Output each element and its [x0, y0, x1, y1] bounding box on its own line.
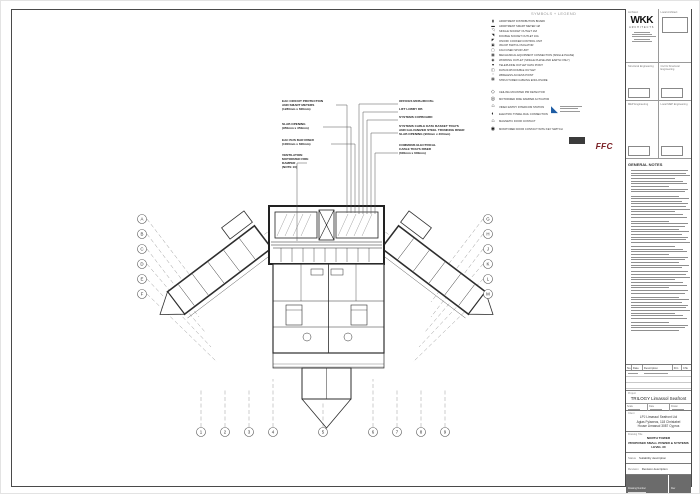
note-text-line — [631, 330, 679, 331]
note-text-line — [631, 271, 688, 272]
titleblock-cell: ArchitectWKKARCHITECTS — [626, 9, 659, 63]
legend-label: WORKING OUTLET (SINGLE PHASE AND EARTH O… — [499, 59, 570, 62]
drawing-number-cell: Drawing Number — [626, 475, 669, 494]
project-label: Project — [626, 391, 691, 395]
legend-label: SINGLE SOCKET OUTLET 16A — [499, 30, 537, 33]
note-text-line — [631, 297, 679, 298]
signature-box — [661, 146, 683, 156]
note-text-line — [631, 201, 682, 202]
grid-bubble-label: D — [140, 262, 143, 267]
signature-box — [661, 88, 683, 98]
project-meta-row: ScaleDateDrawn — [626, 403, 691, 411]
rev-col-header: Drn — [673, 365, 682, 370]
consultant-logo-2 — [569, 137, 585, 144]
legend-label: 45A DP SWITCH ISOLATOR — [499, 44, 534, 47]
callout: EAC CIRCUIT PROTECTIONAND SMART METERS(1… — [282, 100, 323, 112]
right-wing — [379, 211, 494, 318]
project-name: TRILOGY Limassol Seafront — [626, 396, 691, 401]
note-text-line — [631, 226, 685, 227]
rev-label: Rev — [671, 487, 675, 490]
note-text-line — [631, 214, 683, 215]
note-text-line — [631, 287, 669, 288]
signature-box — [628, 88, 650, 98]
legend-label: 16A FUSED SPUR UNIT — [499, 49, 529, 52]
client-lines: LPJ Limassol Seafront LtdAgias Fylaxeos,… — [626, 415, 691, 429]
legend-row: ◇CEILING MOUNTED PIR DETECTOR — [487, 89, 617, 96]
legend-symbol-icon: ◉ — [487, 59, 499, 63]
consultant-logo-1: ◣ — [551, 105, 582, 113]
note-text-line — [631, 327, 685, 328]
note-text-line — [631, 254, 669, 255]
grid-bubble-label: C — [140, 247, 143, 252]
note-text-line — [631, 277, 690, 278]
callouts-left: EAC CIRCUIT PROTECTIONAND SMART METERS(1… — [282, 100, 352, 170]
legend-title: SYMBOLS + LEGEND — [531, 11, 617, 16]
general-notes: GENERAL NOTES — [626, 159, 691, 365]
grid-bubble-label: K — [487, 262, 490, 267]
revision-table: No.DateDescriptionDrnChk — [626, 365, 691, 391]
general-notes-body — [628, 170, 689, 331]
note-text-line — [631, 234, 682, 235]
note-text-line — [631, 186, 669, 187]
note-text-line — [631, 249, 683, 250]
cell-label: Local MEP Engineering — [661, 103, 690, 106]
rev-col-header: Date — [632, 365, 643, 370]
callout-line: (1280mm x 600mm) — [282, 108, 323, 112]
callout: SYSTEMS CABLE DATA BASKET TRAYSAND GALVA… — [399, 125, 465, 137]
callout: VENTILATIONMOTORIZED FIREDAMPER(NOTE 10) — [282, 154, 308, 169]
grid-bubble-label: M — [486, 292, 490, 297]
callout-line: OFFICES MCBs/RCCBs — [399, 100, 434, 104]
note-text-line — [631, 242, 690, 243]
left-wing — [160, 211, 275, 318]
legend-label: MECHANICAL EQUIPMENT CONNECTION (SINGLE … — [499, 54, 574, 57]
blue-triangle-icon: ◣ — [551, 105, 558, 113]
titleblock: ArchitectWKKARCHITECTSLocal ArchitectStr… — [625, 9, 691, 487]
callout-line: LIFT LOBBY DB — [399, 108, 423, 112]
cell-label: Architect — [628, 11, 656, 14]
note-text-line — [631, 196, 679, 197]
general-notes-title: GENERAL NOTES — [628, 162, 689, 167]
status-row: Status Suitability description — [626, 453, 691, 464]
legend-symbol-icon: ◇ — [487, 90, 499, 95]
note-text-line — [631, 211, 675, 212]
note-text-line — [631, 231, 689, 232]
legend-label: APARTMENT DISTRIBUTION BOARD — [499, 20, 545, 23]
cell-label: Civil & Structural Engineering — [661, 65, 690, 71]
lower-stem — [302, 368, 351, 428]
note-text-line — [631, 239, 686, 240]
legend-symbol-icon: ▦ — [487, 54, 499, 58]
note-text-line — [631, 265, 689, 266]
grid-bubble-label: F — [141, 292, 144, 297]
note-text-line — [631, 170, 688, 171]
note-text-line — [631, 267, 682, 268]
titleblock-cell: Structural Engineering — [626, 63, 659, 101]
titleblock-cell: Local Architect — [659, 9, 692, 63]
titleblock-footer: Drawing Number Rev — [626, 475, 691, 494]
callout: EAC BUS BAR RISER(1000mm x 600mm) — [282, 139, 314, 147]
wkk-logo-subtext: ARCHITECTS — [628, 26, 656, 29]
note-text-line — [631, 282, 683, 283]
note-text-line — [631, 279, 675, 280]
core — [269, 206, 384, 264]
legend-label: WIRELESS ACCESS POINT — [499, 74, 534, 77]
note-text-line — [631, 223, 688, 224]
note-text-line — [631, 307, 686, 308]
rev-col-header: Chk — [682, 365, 691, 370]
note-text-line — [631, 322, 669, 323]
rev-col-header: Description — [643, 365, 673, 370]
callout: SYSTEMS CUPBOARD — [399, 116, 433, 120]
note-text-line — [631, 189, 688, 190]
callout: COMMONS ELECTRICALCABLE TRAYS RISER(600m… — [399, 144, 436, 156]
legend-symbol-icon: ▩ — [487, 78, 499, 82]
drawing-title-line: LEVEL 30 — [626, 445, 691, 450]
note-text-line — [631, 181, 683, 182]
cell-label: Structural Engineering — [628, 65, 656, 68]
drawing-sheet: ABCDEFGHJKLM123456789 SYMBOLS + LEGEND ▮… — [0, 0, 700, 494]
meta-label: Drawn — [671, 405, 678, 408]
note-text-line — [631, 251, 687, 252]
drawing-number-label: Drawing Number — [628, 487, 646, 490]
grid-bubble-label: E — [141, 277, 144, 282]
note-text-line — [631, 229, 679, 230]
signature-box — [628, 146, 650, 156]
legend-label: ON/OFF COOKER CONTROL UNIT — [499, 40, 542, 43]
stamp-box — [662, 17, 688, 33]
titleblock-cell: Civil & Structural Engineering — [659, 63, 692, 101]
titleblock-cell: MEP Engineering — [626, 101, 659, 159]
revision-label: Revision — [628, 467, 639, 471]
note-text-line — [631, 221, 669, 222]
note-text-line — [631, 302, 682, 303]
callout-line: (NOTE 10) — [282, 166, 308, 170]
address-lines — [632, 32, 652, 43]
client-line: House Limassol 3087 Cyprus — [626, 424, 691, 429]
legend-label: APARTMENT SMART METER 1Ø — [499, 25, 540, 28]
note-text-line — [631, 257, 688, 258]
callout-line: SYSTEMS CUPBOARD — [399, 116, 433, 120]
meta-cell: Date — [648, 404, 670, 411]
status-value: Suitability description — [639, 456, 666, 460]
legend-symbol-icon: ▮ — [487, 20, 499, 24]
note-text-line — [631, 246, 675, 247]
note-text-line — [631, 217, 687, 218]
legend-label: CEILING MOUNTED PIR DETECTOR — [499, 91, 545, 94]
note-text-line — [631, 285, 687, 286]
legend-label: STRUCTURED CABLING ENCLOSURE — [499, 79, 548, 82]
rev-cell: Rev — [669, 475, 691, 494]
legend-symbol-icon: ▼ — [487, 64, 499, 68]
wkk-logo: WKK — [628, 16, 656, 26]
note-text-line — [631, 318, 687, 319]
callout: LIFT LOBBY DB — [399, 108, 423, 112]
revision-row — [626, 383, 691, 389]
note-text-line — [631, 313, 675, 314]
consultant-logos: ◣ FFC — [549, 101, 615, 159]
note-text-line — [631, 203, 688, 204]
grid-bubble-label: A — [141, 217, 144, 222]
consultant-cells: ArchitectWKKARCHITECTSLocal ArchitectStr… — [626, 9, 691, 159]
note-text-line — [631, 209, 690, 210]
note-text-line — [631, 293, 685, 294]
note-text-line — [631, 175, 690, 176]
callouts-right: OFFICES MCBs/RCCBsLIFT LOBBY DBSYSTEMS C… — [399, 100, 517, 170]
note-text-line — [631, 290, 688, 291]
grid-bubble-label: H — [486, 232, 489, 237]
grid-bubble-label: B — [141, 232, 144, 237]
note-text-line — [631, 206, 686, 207]
note-text-line — [631, 198, 689, 199]
callout-line: SLAB OPENING (900mm x 400mm) — [399, 133, 465, 137]
drawing-title-lines: NORTH TOWERPROPOSED SMALL POWER & SYSTEM… — [626, 436, 691, 450]
note-text-line — [631, 262, 679, 263]
meta-cell: Drawn — [670, 404, 691, 411]
note-text-line — [631, 237, 688, 238]
apartments — [273, 264, 384, 368]
note-text-line — [631, 183, 687, 184]
note-text-line — [631, 274, 686, 275]
callout: OFFICES MCBs/RCCBs — [399, 100, 434, 104]
cell-label: MEP Engineering — [628, 103, 656, 106]
note-text-line — [631, 315, 683, 316]
revision-value: Revision description — [642, 467, 668, 471]
callout-line: (600mm x 600mm) — [399, 152, 436, 156]
note-text-line — [631, 325, 688, 326]
note-text-line — [631, 178, 675, 179]
drawing-title-section: Drawing Title NORTH TOWERPROPOSED SMALL … — [626, 432, 691, 453]
grid-bubble-label: G — [486, 217, 490, 222]
meta-label: Date — [649, 405, 654, 408]
logo-text-lines — [560, 106, 582, 112]
client-section: Client LPJ Limassol Seafront LtdAgias Fy… — [626, 411, 691, 432]
note-text-line — [631, 299, 689, 300]
legend-label: DOUBLE SOCKET OUTLET 16A — [499, 35, 539, 38]
note-text-line — [631, 259, 685, 260]
titleblock-cell: Local MEP Engineering — [659, 101, 692, 159]
note-text-line — [631, 191, 685, 192]
meta-label: Scale — [627, 405, 633, 408]
project-section: Project TRILOGY Limassol Seafront ScaleD… — [626, 391, 691, 411]
ffc-logo: FFC — [596, 141, 613, 151]
legend-label: TELEPHONE OUTLET DATA POINT — [499, 64, 543, 67]
meta-cell: Scale — [626, 404, 648, 411]
status-label: Status — [628, 456, 636, 460]
callout: SLAB OPENING(950mm x 350mm) — [282, 123, 309, 131]
callout-line: (1000mm x 600mm) — [282, 143, 314, 147]
note-text-line — [631, 310, 690, 311]
note-text-line — [631, 305, 688, 306]
revision-row-kv: Revision Revision description — [626, 464, 691, 475]
note-text-line — [631, 173, 686, 174]
cell-label: Local Architect — [661, 11, 690, 14]
grid-bubble-label: J — [487, 247, 489, 252]
legend-label: DATA RJ45 DOUBLE OUTLET — [499, 69, 536, 72]
callout-line: (950mm x 350mm) — [282, 127, 309, 131]
